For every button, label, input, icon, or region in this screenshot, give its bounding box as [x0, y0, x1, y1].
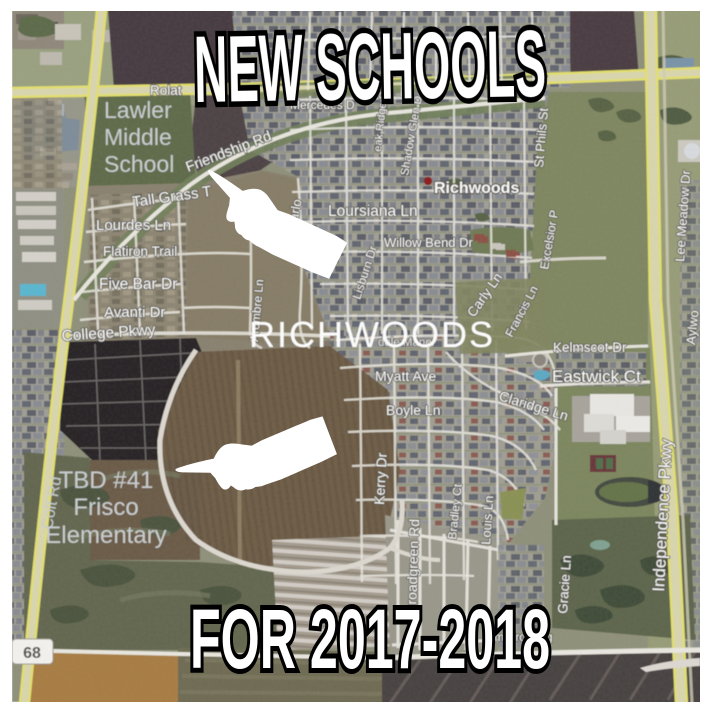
svg-text:TBD #41: TBD #41	[59, 467, 154, 494]
svg-text:Middle: Middle	[104, 124, 172, 150]
svg-text:Lawler: Lawler	[104, 97, 172, 123]
svg-text:FOR 2017-2018: FOR 2017-2018	[190, 592, 550, 686]
svg-text:Flatiron Trail: Flatiron Trail	[103, 244, 177, 259]
svg-text:Frisco: Frisco	[73, 494, 138, 521]
svg-text:Myatt Ave: Myatt Ave	[375, 368, 436, 384]
svg-text:Elementary: Elementary	[45, 522, 166, 549]
svg-text:School: School	[104, 151, 174, 177]
svg-text:Lourdes Ln: Lourdes Ln	[96, 217, 171, 234]
svg-text:Rolat: Rolat	[150, 83, 182, 98]
svg-text:Five Bar Dr: Five Bar Dr	[99, 276, 177, 293]
svg-text:68: 68	[23, 645, 41, 662]
svg-text:RICHWOODS: RICHWOODS	[249, 314, 495, 355]
svg-text:Richwoods: Richwoods	[434, 180, 519, 197]
svg-text:Loursiana Ln: Loursiana Ln	[328, 203, 418, 220]
svg-text:Avanti Dr: Avanti Dr	[104, 304, 165, 321]
svg-text:NEW SCHOOLS: NEW SCHOOLS	[193, 11, 547, 123]
svg-text:Willow Bend Dr: Willow Bend Dr	[384, 235, 474, 250]
svg-text:Kerry Dr: Kerry Dr	[371, 452, 390, 505]
svg-text:Eastwick Ct: Eastwick Ct	[552, 367, 641, 386]
svg-text:Kelmscot Dr: Kelmscot Dr	[553, 340, 627, 355]
svg-text:Boyle Ln: Boyle Ln	[386, 402, 440, 418]
